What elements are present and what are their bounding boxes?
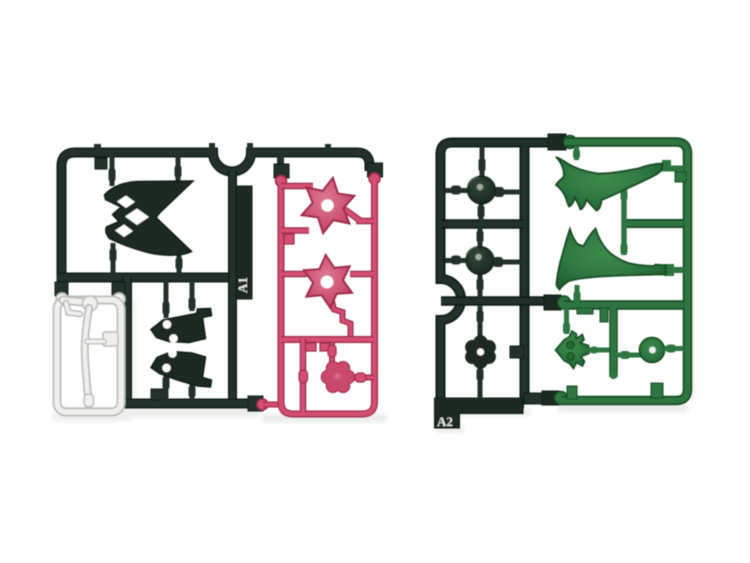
svg-text:A1: A1 xyxy=(235,277,250,293)
svg-text:A2: A2 xyxy=(437,414,453,429)
